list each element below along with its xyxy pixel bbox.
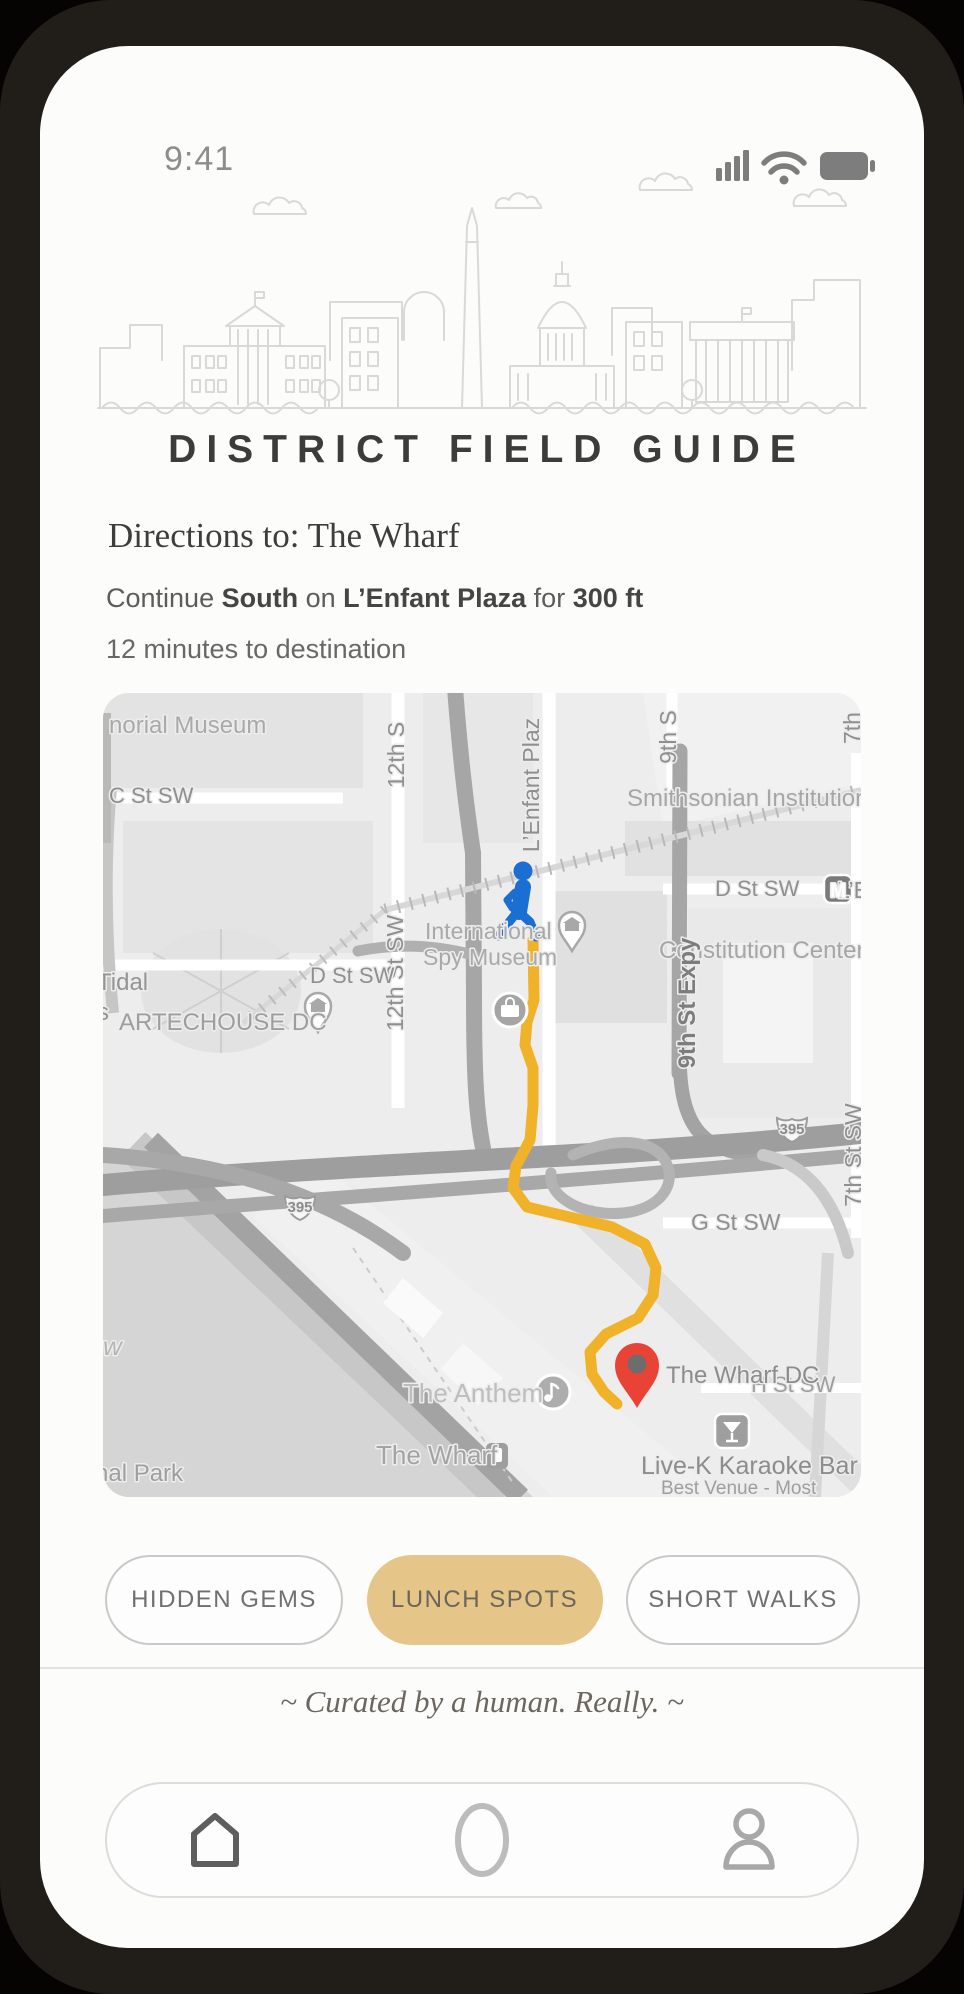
dc-skyline-illustration [92,150,872,418]
karaoke-bar-poi-icon [715,1414,749,1448]
footer-divider [40,1667,924,1669]
home-icon [187,1809,243,1871]
map-label: s [103,999,109,1026]
map-label: The Anthem [403,1378,543,1408]
app-screen: 9:41 [40,46,924,1948]
map-label: 9th S [655,710,681,764]
map-label: 395 [287,1199,312,1216]
lincoln-memorial-outline [690,308,794,402]
map-label: nal Park [103,1460,184,1487]
map-label: 12th S [383,722,409,789]
map-label: w [103,1331,124,1361]
category-chips: HIDDEN GEMS LUNCH SPOTS SHORT WALKS [105,1555,860,1645]
app-root: { "status_bar": { "time": "9:41", "icons… [0,0,964,1994]
map-label: Tidal [103,969,148,996]
shopping-poi-icon [493,993,527,1027]
map-label: D St SW [310,963,395,988]
chip-short-walks[interactable]: SHORT WALKS [626,1555,860,1645]
map-label: Smithsonian Institution [627,785,861,812]
map-label: M [830,881,846,902]
map-label: 7th St SW [840,1103,861,1207]
nav-home-button[interactable] [185,1800,245,1880]
profile-icon [719,1807,779,1873]
map-label: The Wharf [376,1440,498,1470]
map-label: Best Venue - Most [661,1478,817,1497]
map-label: Live-K Karaoke Bar [641,1452,858,1480]
nav-explore-button[interactable] [452,1800,512,1880]
washington-monument-outline [462,208,482,408]
footer-tagline: ~ Curated by a human. Really. ~ [40,1684,924,1720]
circle-icon [452,1800,512,1880]
map-label: D St SW [715,876,800,901]
directions-heading: Directions to: The Wharf [108,516,460,556]
map-label: Spy Museum [423,944,557,970]
map-label: G St SW [691,1209,781,1235]
nav-profile-button[interactable] [719,1800,779,1880]
map-label: International [425,918,552,944]
page-title: DISTRICT FIELD GUIDE [40,428,924,472]
map-label: norial Museum [109,712,266,739]
directions-eta: 12 minutes to destination [106,634,406,665]
map-label: ARTECHOUSE DC [119,1009,327,1036]
map-label: 395 [779,1121,804,1138]
white-house-outline [184,292,325,408]
map-label: 7th [839,712,861,744]
route-map[interactable]: norial MuseumC St SWTidals12th S12th St … [103,693,861,1497]
map-label: The Wharf DC [666,1362,819,1389]
phone-frame: 9:41 [0,0,964,1994]
map-label: L’Enfant Plaz [518,718,544,852]
capitol-outline [510,262,614,408]
map-label: C St SW [109,783,194,808]
chip-lunch-spots[interactable]: LUNCH SPOTS [367,1555,603,1645]
bottom-navigation [105,1782,859,1898]
map-label: 9th St Expy [674,937,701,1068]
directions-step: Continue South on L’Enfant Plaza for 300… [106,583,643,614]
chip-hidden-gems[interactable]: HIDDEN GEMS [105,1555,343,1645]
